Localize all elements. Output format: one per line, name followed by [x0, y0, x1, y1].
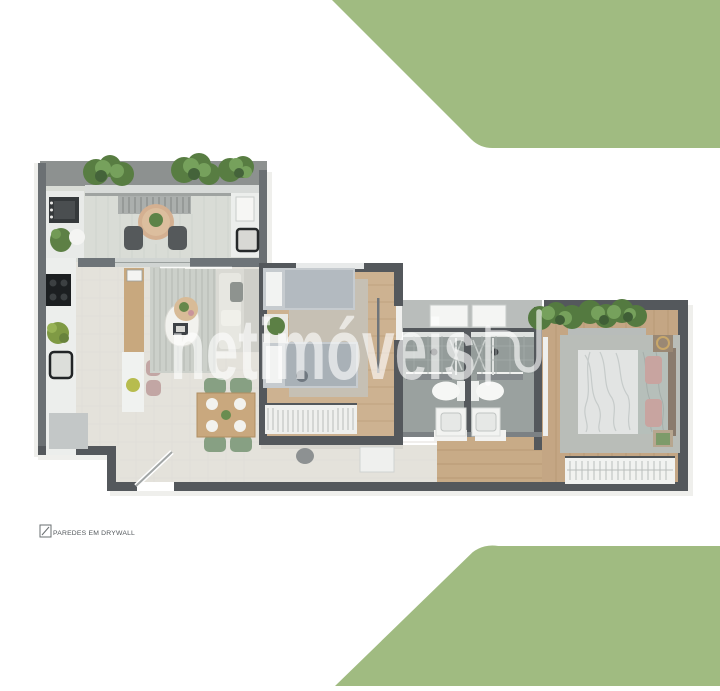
svg-text:PAREDES EM DRYWALL: PAREDES EM DRYWALL — [53, 530, 135, 537]
svg-text:netimóveis: netimóveis — [170, 302, 476, 398]
